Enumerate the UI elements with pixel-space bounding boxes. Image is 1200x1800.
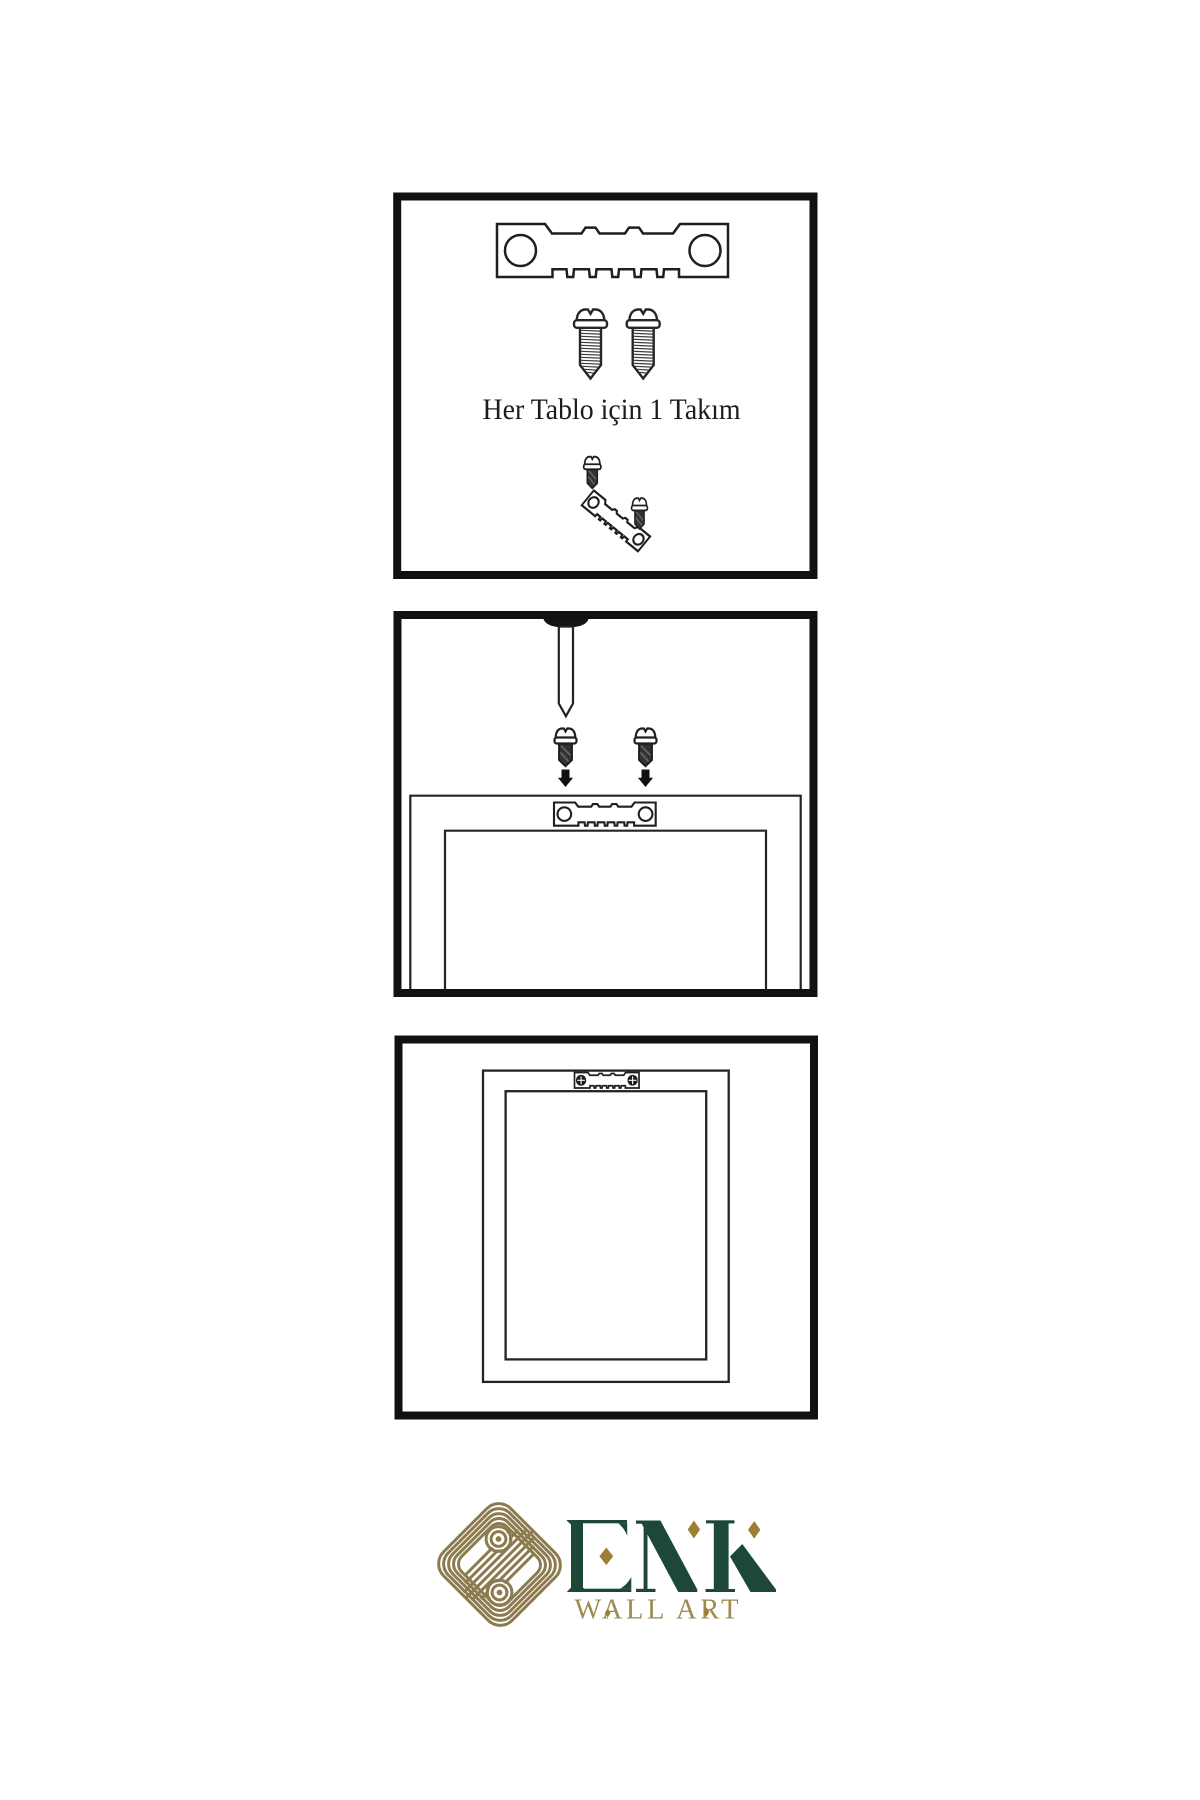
- svg-text:WALL ART: WALL ART: [574, 1595, 742, 1626]
- svg-text:Her Tablo için 1 Takım: Her Tablo için 1 Takım: [483, 393, 741, 426]
